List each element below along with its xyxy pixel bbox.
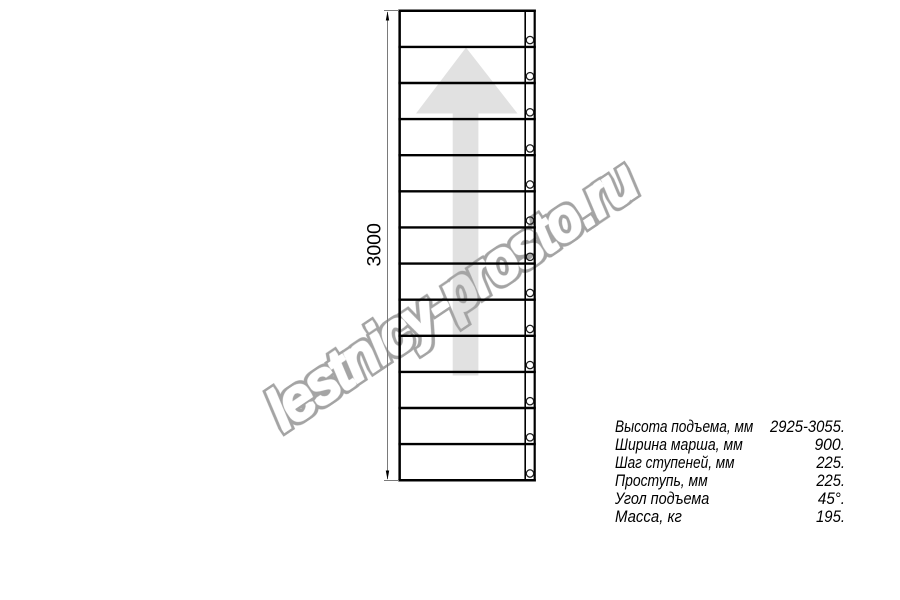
svg-text:45°.: 45°. — [818, 489, 845, 508]
svg-text:Высота подъема, мм: Высота подъема, мм — [615, 418, 754, 437]
svg-text:195.: 195. — [816, 508, 845, 526]
svg-text:Проступь, мм: Проступь, мм — [615, 472, 708, 491]
svg-text:Ширина марша, мм: Ширина марша, мм — [615, 436, 743, 455]
svg-text:2925-3055.: 2925-3055. — [769, 418, 845, 436]
svg-text:Шаг ступеней, мм: Шаг ступеней, мм — [615, 454, 735, 473]
svg-text:Масса, кг: Масса, кг — [615, 508, 682, 526]
svg-text:225.: 225. — [815, 454, 845, 472]
svg-text:3000: 3000 — [364, 223, 386, 267]
svg-text:Угол подъема: Угол подъема — [614, 490, 709, 508]
svg-text:900.: 900. — [814, 435, 845, 454]
svg-text:lestnicy-prosto.ru: lestnicy-prosto.ru — [256, 149, 648, 441]
svg-text:225.: 225. — [815, 472, 845, 490]
